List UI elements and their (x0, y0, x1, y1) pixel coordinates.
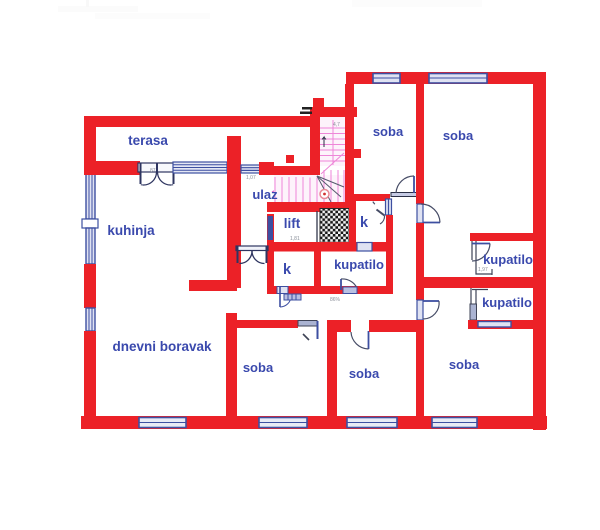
svg-text:kuhinja: kuhinja (107, 223, 155, 238)
svg-text:terasa: terasa (128, 133, 168, 148)
svg-text:kupatilo: kupatilo (482, 295, 532, 310)
svg-text:dnevni boravak: dnevni boravak (112, 339, 212, 354)
svg-text:k: k (360, 215, 369, 231)
svg-text:lift: lift (284, 216, 301, 231)
svg-text:87: 87 (150, 168, 156, 174)
svg-text:soba: soba (449, 357, 480, 372)
svg-text:86%: 86% (330, 297, 341, 303)
svg-text:kupatilo: kupatilo (334, 257, 384, 272)
svg-text:soba: soba (243, 360, 274, 375)
svg-text:k: k (283, 262, 292, 278)
svg-text:1,07: 1,07 (246, 175, 256, 181)
svg-text:soba: soba (443, 128, 474, 143)
svg-text:ulaz: ulaz (252, 187, 278, 202)
svg-text:1,81: 1,81 (290, 236, 300, 242)
svg-text:1,97: 1,97 (478, 267, 488, 273)
svg-text:4,7: 4,7 (333, 122, 340, 128)
svg-text:soba: soba (349, 366, 380, 381)
svg-text:kupatilo: kupatilo (483, 252, 533, 267)
svg-text:soba: soba (373, 124, 404, 139)
